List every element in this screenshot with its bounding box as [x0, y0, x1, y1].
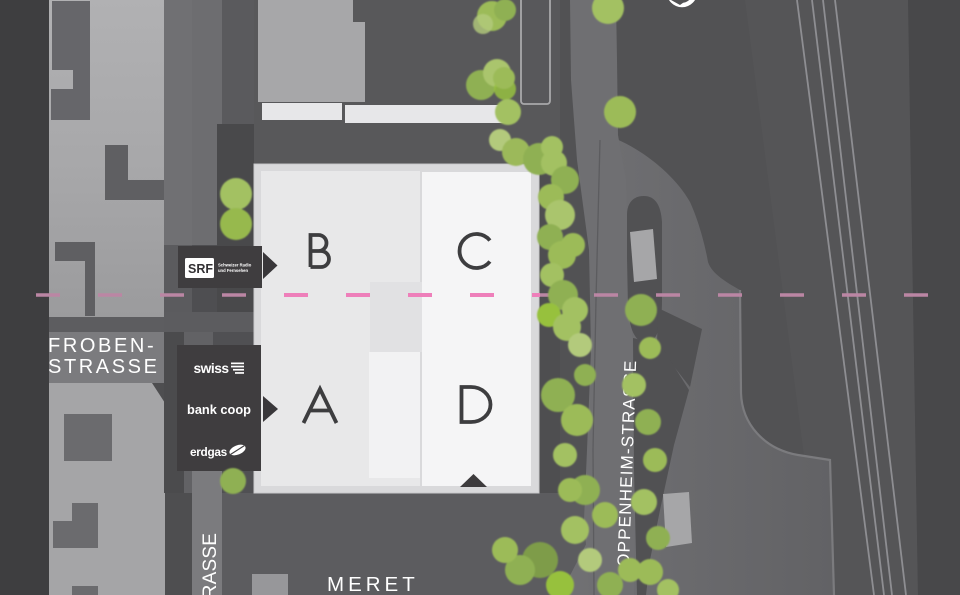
svg-text:MERET: MERET	[327, 573, 419, 595]
svg-text:FROBEN-: FROBEN-	[48, 335, 156, 357]
svg-text:Schweizer Radio: Schweizer Radio	[218, 263, 252, 268]
svg-text:erdgas: erdgas	[190, 445, 228, 459]
svg-text:STRASSE: STRASSE	[200, 533, 221, 595]
svg-text:STRASSE: STRASSE	[48, 356, 160, 378]
svg-text:bank coop: bank coop	[187, 402, 251, 417]
svg-text:SRF: SRF	[188, 262, 213, 276]
svg-text:und Fernsehen: und Fernsehen	[218, 268, 248, 273]
svg-text:swiss: swiss	[194, 361, 230, 376]
